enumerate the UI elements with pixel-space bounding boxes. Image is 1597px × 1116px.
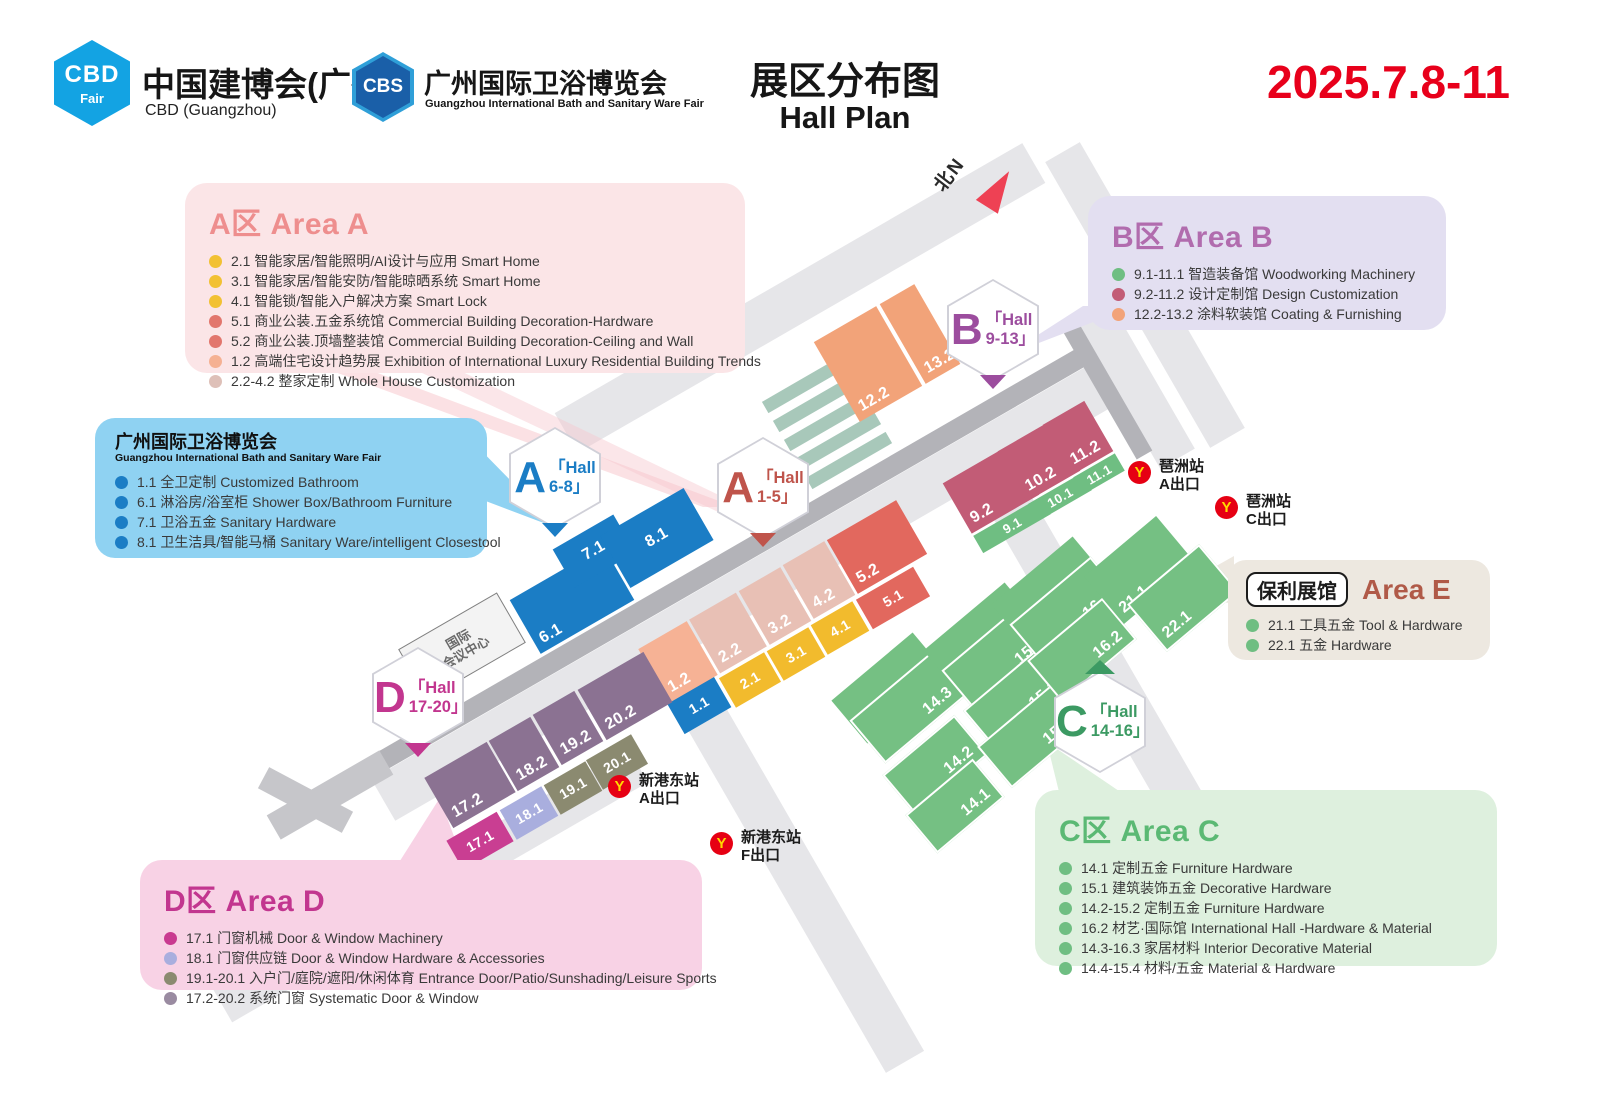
legend-item: 21.1 工具五金 Tool & Hardware xyxy=(1246,615,1472,635)
hall-block-label: 22.1 xyxy=(1159,607,1196,642)
hall-badge-range: 「Hall17-20」 xyxy=(409,679,462,717)
legend-item: 9.1-11.1 智造装备馆 Woodworking Machinery xyxy=(1112,264,1422,284)
legend-item: 14.1 定制五金 Furniture Hardware xyxy=(1059,858,1473,878)
legend-item: 8.1 卫生洁具/智能马桶 Sanitary Ware/intelligent … xyxy=(115,532,467,552)
metro-station-琶洲站-C出口: Y琶洲站C出口 xyxy=(1215,493,1291,529)
hall-block-label: 18.2 xyxy=(513,753,551,785)
hall-block-label: 2.1 xyxy=(737,668,763,692)
hall-badge-b-9-13: B「Hall9-13」 xyxy=(947,279,1039,381)
hall-badge-pointer-icon xyxy=(750,533,776,547)
metro-station-exit: F出口 xyxy=(741,847,801,865)
legend-item-label: 19.1-20.1 入户门/庭院/遮阳/休闲体育 Entrance Door/P… xyxy=(186,968,717,988)
metro-logo-icon: Y xyxy=(710,832,733,855)
legend-item: 17.1 门窗机械 Door & Window Machinery xyxy=(164,928,678,948)
legend-area-c-title: C区 Area C xyxy=(1059,806,1473,850)
metro-station-exit: A出口 xyxy=(639,790,699,808)
legend-item: 1.1 全卫定制 Customized Bathroom xyxy=(115,472,467,492)
hall-badge-pointer-icon xyxy=(1085,660,1115,674)
hall-badge-letter: A xyxy=(722,466,754,510)
legend-dot-icon xyxy=(1059,942,1072,955)
legend-item-label: 16.2 材艺·国际馆 International Hall -Hardware… xyxy=(1081,918,1432,938)
legend-item: 16.2 材艺·国际馆 International Hall -Hardware… xyxy=(1059,918,1473,938)
legend-item-label: 3.1 智能家居/智能安防/智能晾晒系统 Smart Home xyxy=(231,271,541,291)
cbs-fair-subtitle: Guangzhou International Bath and Sanitar… xyxy=(425,98,704,110)
hall-block-label: 14.3 xyxy=(920,684,957,719)
legend-dot-icon xyxy=(1059,862,1072,875)
hall-badge-d-17-20: D「Hall17-20」 xyxy=(372,647,464,749)
hall-block-label: 3.1 xyxy=(783,642,809,666)
legend-item: 3.1 智能家居/智能安防/智能晾晒系统 Smart Home xyxy=(209,271,721,291)
metro-station-琶洲站-A出口: Y琶洲站A出口 xyxy=(1128,458,1204,494)
hall-badge-range: 「Hall6-8」 xyxy=(549,459,596,497)
legend-dot-icon xyxy=(115,536,128,549)
legend-dot-icon xyxy=(115,496,128,509)
hexagon-face: A「Hall6-8」 xyxy=(511,429,599,527)
legend-item: 14.3-16.3 家居材料 Interior Decorative Mater… xyxy=(1059,938,1473,958)
hall-block-label: 14.1 xyxy=(958,785,995,820)
metro-logo-icon: Y xyxy=(608,775,631,798)
legend-area-c: C区 Area C 14.1 定制五金 Furniture Hardware15… xyxy=(1035,790,1497,966)
metro-station-name: 新港东站 xyxy=(741,829,801,847)
legend-area-a-title: A区 Area A xyxy=(209,199,721,243)
legend-dot-icon xyxy=(209,355,222,368)
legend-item-label: 12.2-13.2 涂料软装馆 Coating & Furnishing xyxy=(1134,304,1402,324)
legend-dot-icon xyxy=(1059,922,1072,935)
legend-area-a: A区 Area A 2.1 智能家居/智能照明/AI设计与应用 Smart Ho… xyxy=(185,183,745,373)
hall-block-label: 20.2 xyxy=(602,702,640,734)
legend-item-label: 1.1 全卫定制 Customized Bathroom xyxy=(137,472,359,492)
metro-station-name: 琶洲站 xyxy=(1159,458,1204,476)
legend-area-e-venue: 保利展馆 xyxy=(1246,572,1348,607)
legend-item: 18.1 门窗供应链 Door & Window Hardware & Acce… xyxy=(164,948,678,968)
legend-dot-icon xyxy=(1246,639,1259,652)
cbd-fair-subtitle: CBD (Guangzhou) xyxy=(145,102,277,120)
metro-logo-icon: Y xyxy=(1128,461,1151,484)
legend-area-b-title: B区 Area B xyxy=(1112,212,1422,256)
hall-badge-range: 「Hall14-16」 xyxy=(1091,703,1144,741)
hall-block-label: 3.2 xyxy=(765,611,795,638)
cbs-fair-title: 广州国际卫浴博览会 xyxy=(424,62,667,101)
legend-item-label: 6.1 淋浴房/浴室柜 Shower Box/Bathroom Furnitur… xyxy=(137,492,452,512)
hall-badge-letter: B xyxy=(951,308,983,352)
hall-block-label: 5.2 xyxy=(853,560,883,587)
legend-item: 14.4-15.4 材料/五金 Material & Hardware xyxy=(1059,958,1473,978)
metro-station-新港东站-A出口: Y新港东站A出口 xyxy=(608,772,699,808)
cbs-logo-text: CBS xyxy=(363,76,403,98)
legend-item: 14.2-15.2 定制五金 Furniture Hardware xyxy=(1059,898,1473,918)
legend-item: 7.1 卫浴五金 Sanitary Hardware xyxy=(115,512,467,532)
hall-badge-range: 「Hall1-5」 xyxy=(757,469,804,507)
legend-dot-icon xyxy=(209,295,222,308)
legend-item-label: 4.1 智能锁/智能入户解决方案 Smart Lock xyxy=(231,291,487,311)
legend-item-label: 14.1 定制五金 Furniture Hardware xyxy=(1081,858,1293,878)
legend-item-label: 7.1 卫浴五金 Sanitary Hardware xyxy=(137,512,336,532)
metro-logo-icon: Y xyxy=(1215,496,1238,519)
hall-badge-pointer-icon xyxy=(980,375,1006,389)
legend-item-label: 2.1 智能家居/智能照明/AI设计与应用 Smart Home xyxy=(231,251,540,271)
legend-area-b: B区 Area B 9.1-11.1 智造装备馆 Woodworking Mac… xyxy=(1088,196,1446,330)
hexagon-face: C「Hall14-16」 xyxy=(1056,673,1144,771)
legend-item: 5.2 商业公装.顶墙整装馆 Commercial Building Decor… xyxy=(209,331,721,351)
legend-dot-icon xyxy=(1246,619,1259,632)
legend-item-label: 21.1 工具五金 Tool & Hardware xyxy=(1268,615,1463,635)
legend-dot-icon xyxy=(209,375,222,388)
legend-item: 22.1 五金 Hardware xyxy=(1246,635,1472,655)
hall-badge-c-14-16: C「Hall14-16」 xyxy=(1054,671,1146,773)
legend-area-d-title: D区 Area D xyxy=(164,876,678,920)
legend-dot-icon xyxy=(1059,882,1072,895)
legend-item-label: 2.2-4.2 整家定制 Whole House Customization xyxy=(231,371,515,391)
legend-item: 1.2 高端住宅设计趋势展 Exhibition of Internationa… xyxy=(209,351,721,371)
legend-item: 17.2-20.2 系统门窗 Systematic Door & Window xyxy=(164,988,678,1008)
legend-item-label: 5.2 商业公装.顶墙整装馆 Commercial Building Decor… xyxy=(231,331,693,351)
legend-item-label: 9.1-11.1 智造装备馆 Woodworking Machinery xyxy=(1134,264,1415,284)
legend-dot-icon xyxy=(115,516,128,529)
hall-block-label: 19.1 xyxy=(556,774,589,802)
hall-block-label: 5.1 xyxy=(880,586,906,610)
legend-item: 6.1 淋浴房/浴室柜 Shower Box/Bathroom Furnitur… xyxy=(115,492,467,512)
hall-badge-pointer-icon xyxy=(405,743,431,757)
cbd-logo-subtext: Fair xyxy=(80,91,104,106)
legend-dot-icon xyxy=(164,972,177,985)
legend-area-e: 保利展馆 Area E 21.1 工具五金 Tool & Hardware22.… xyxy=(1228,560,1490,660)
legend-dot-icon xyxy=(1112,308,1125,321)
metro-station-exit: A出口 xyxy=(1159,476,1204,494)
legend-dot-icon xyxy=(1059,962,1072,975)
hall-badge-pointer-icon xyxy=(542,523,568,537)
metro-station-name: 新港东站 xyxy=(639,772,699,790)
legend-item: 2.2-4.2 整家定制 Whole House Customization xyxy=(209,371,721,391)
cbd-fair-logo: CBD Fair xyxy=(54,40,130,126)
legend-item: 5.1 商业公装.五金系统馆 Commercial Building Decor… xyxy=(209,311,721,331)
legend-dot-icon xyxy=(164,992,177,1005)
legend-dot-icon xyxy=(209,315,222,328)
hall-block-label: 17.2 xyxy=(449,790,487,822)
hall-badge-a-1-5: A「Hall1-5」 xyxy=(717,437,809,539)
hall-block-label: 19.2 xyxy=(557,727,595,759)
legend-item-label: 1.2 高端住宅设计趋势展 Exhibition of Internationa… xyxy=(231,351,761,371)
metro-station-name: 琶洲站 xyxy=(1246,493,1291,511)
hall-badge-letter: D xyxy=(374,676,406,720)
legend-item: 19.1-20.1 入户门/庭院/遮阳/休闲体育 Entrance Door/P… xyxy=(164,968,678,988)
legend-dot-icon xyxy=(209,255,222,268)
hall-block-label: 18.1 xyxy=(512,799,545,827)
legend-dot-icon xyxy=(1112,288,1125,301)
hall-block-label: 6.1 xyxy=(536,620,566,647)
legend-item-label: 17.2-20.2 系统门窗 Systematic Door & Window xyxy=(186,988,479,1008)
legend-area-e-title: Area E xyxy=(1362,574,1451,606)
legend-item: 2.1 智能家居/智能照明/AI设计与应用 Smart Home xyxy=(209,251,721,271)
legend-item: 9.2-11.2 设计定制馆 Design Customization xyxy=(1112,284,1422,304)
hall-block-label: 1.1 xyxy=(686,693,712,717)
legend-dot-icon xyxy=(209,335,222,348)
legend-item-label: 17.1 门窗机械 Door & Window Machinery xyxy=(186,928,443,948)
legend-item-label: 14.2-15.2 定制五金 Furniture Hardware xyxy=(1081,898,1325,918)
legend-item-label: 9.2-11.2 设计定制馆 Design Customization xyxy=(1134,284,1398,304)
hexagon-face: A「Hall1-5」 xyxy=(719,439,807,537)
legend-item: 4.1 智能锁/智能入户解决方案 Smart Lock xyxy=(209,291,721,311)
hall-badge-a-6-8: A「Hall6-8」 xyxy=(509,427,601,529)
legend-item-label: 8.1 卫生洁具/智能马桶 Sanitary Ware/intelligent … xyxy=(137,532,501,552)
hall-badge-letter: C xyxy=(1056,700,1088,744)
hall-block-label: 2.2 xyxy=(716,640,746,667)
legend-dot-icon xyxy=(164,952,177,965)
page-title-cn: 展区分布图 xyxy=(700,50,990,105)
legend-bath-title-en: Guangzhou International Bath and Sanitar… xyxy=(115,452,467,464)
legend-bath-fair: 广州国际卫浴博览会 Guangzhou International Bath a… xyxy=(95,418,487,558)
event-date: 2025.7.8-11 xyxy=(1180,55,1510,109)
metro-station-新港东站-F出口: Y新港东站F出口 xyxy=(710,829,801,865)
hexagon-face: D「Hall17-20」 xyxy=(374,649,462,747)
legend-dot-icon xyxy=(115,476,128,489)
legend-item-label: 18.1 门窗供应链 Door & Window Hardware & Acce… xyxy=(186,948,545,968)
hall-badge-range: 「Hall9-13」 xyxy=(986,311,1036,349)
hall-badge-letter: A xyxy=(514,456,546,500)
hall-block-label: 12.2 xyxy=(855,384,893,416)
hall-block-label: 4.1 xyxy=(827,616,853,640)
hexagon-face: B「Hall9-13」 xyxy=(949,281,1037,379)
metro-station-exit: C出口 xyxy=(1246,511,1291,529)
legend-dot-icon xyxy=(209,275,222,288)
legend-dot-icon xyxy=(164,932,177,945)
hall-block-label: 8.1 xyxy=(642,524,672,551)
cbd-logo-text: CBD xyxy=(65,61,120,89)
page-title-en: Hall Plan xyxy=(700,100,990,136)
hall-block-label: 17.1 xyxy=(463,827,496,855)
legend-dot-icon xyxy=(1112,268,1125,281)
legend-area-d: D区 Area D 17.1 门窗机械 Door & Window Machin… xyxy=(140,860,702,990)
legend-dot-icon xyxy=(1059,902,1072,915)
legend-item-label: 15.1 建筑装饰五金 Decorative Hardware xyxy=(1081,878,1332,898)
legend-item-label: 22.1 五金 Hardware xyxy=(1268,635,1392,655)
legend-item-label: 14.3-16.3 家居材料 Interior Decorative Mater… xyxy=(1081,938,1372,958)
legend-item-label: 14.4-15.4 材料/五金 Material & Hardware xyxy=(1081,958,1335,978)
legend-item: 12.2-13.2 涂料软装馆 Coating & Furnishing xyxy=(1112,304,1422,324)
legend-bath-title-cn: 广州国际卫浴博览会 xyxy=(115,432,467,452)
legend-item: 15.1 建筑装饰五金 Decorative Hardware xyxy=(1059,878,1473,898)
hall-plan-canvas: 国际 会议中心 6.17.18.11.11.22.23.24.25.22.13.… xyxy=(0,0,1597,1116)
legend-item-label: 5.1 商业公装.五金系统馆 Commercial Building Decor… xyxy=(231,311,653,331)
hall-block-label: 4.2 xyxy=(809,585,839,612)
